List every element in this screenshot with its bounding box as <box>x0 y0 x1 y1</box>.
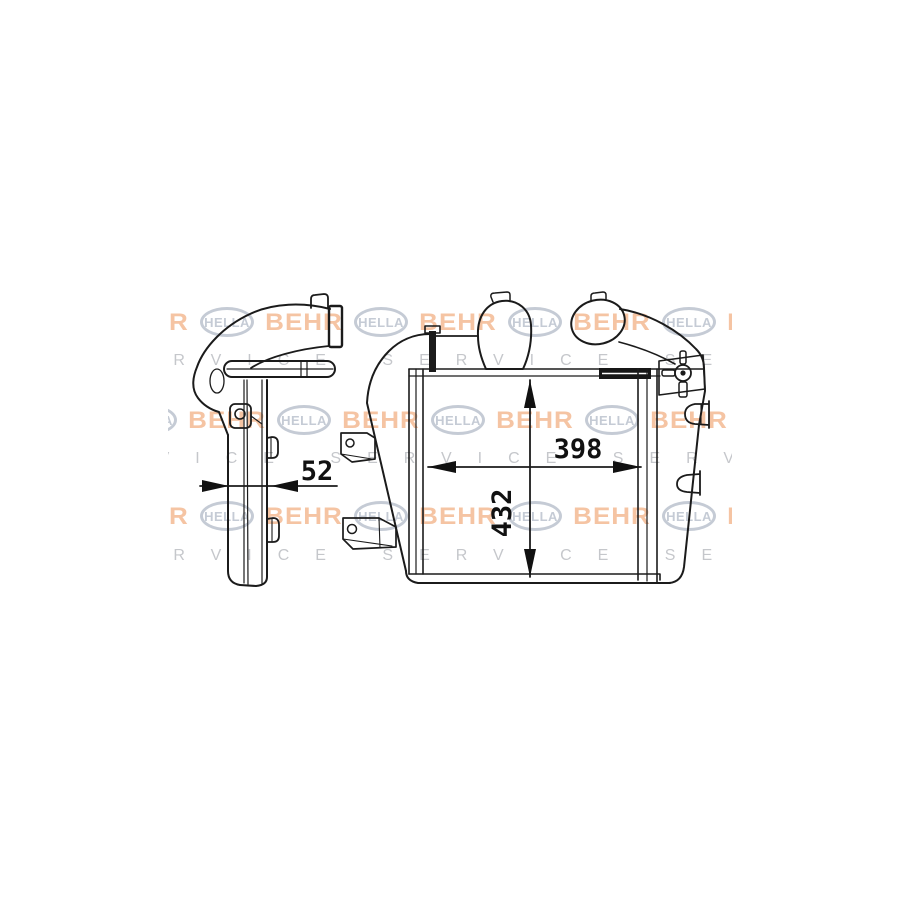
inlet-stub <box>429 331 436 372</box>
dimension-height: 432 <box>487 380 536 577</box>
arrowhead-up-icon <box>524 380 536 408</box>
arrowhead-down-icon <box>524 549 536 577</box>
dimension-width-label: 398 <box>554 434 603 465</box>
technical-drawing: 52 <box>0 0 900 900</box>
dimension-depth-label: 52 <box>301 456 334 487</box>
arrowhead-left-icon <box>428 461 456 473</box>
dimension-depth: 52 <box>200 456 337 492</box>
side-mounting-bracket <box>230 404 251 428</box>
mounting-pin-lower <box>677 471 700 495</box>
front-bracket-upper <box>341 433 375 462</box>
front-view-drawing: 398 432 <box>341 292 709 583</box>
dimension-width: 398 <box>428 434 641 473</box>
product-drawing-page: BEHRHELLABEHRHELLABEHRHELLABEHRHELLABEHR… <box>0 0 900 900</box>
arrowhead-right-icon <box>613 461 641 473</box>
left-port <box>478 301 531 369</box>
arrowhead-left-icon <box>271 480 298 492</box>
side-pipe-flange <box>329 306 342 347</box>
dimension-height-label: 432 <box>487 489 518 538</box>
mounting-pin-upper <box>685 401 709 428</box>
side-view-drawing: 52 <box>193 294 342 586</box>
arrowhead-right-icon <box>202 480 229 492</box>
